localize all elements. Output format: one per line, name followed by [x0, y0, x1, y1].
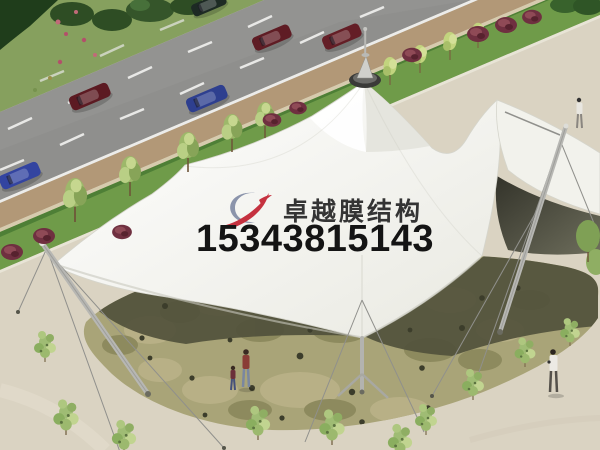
rendered-image: 卓越膜结构 15343815143 [0, 0, 600, 450]
phone-number: 15343815143 [196, 218, 434, 261]
